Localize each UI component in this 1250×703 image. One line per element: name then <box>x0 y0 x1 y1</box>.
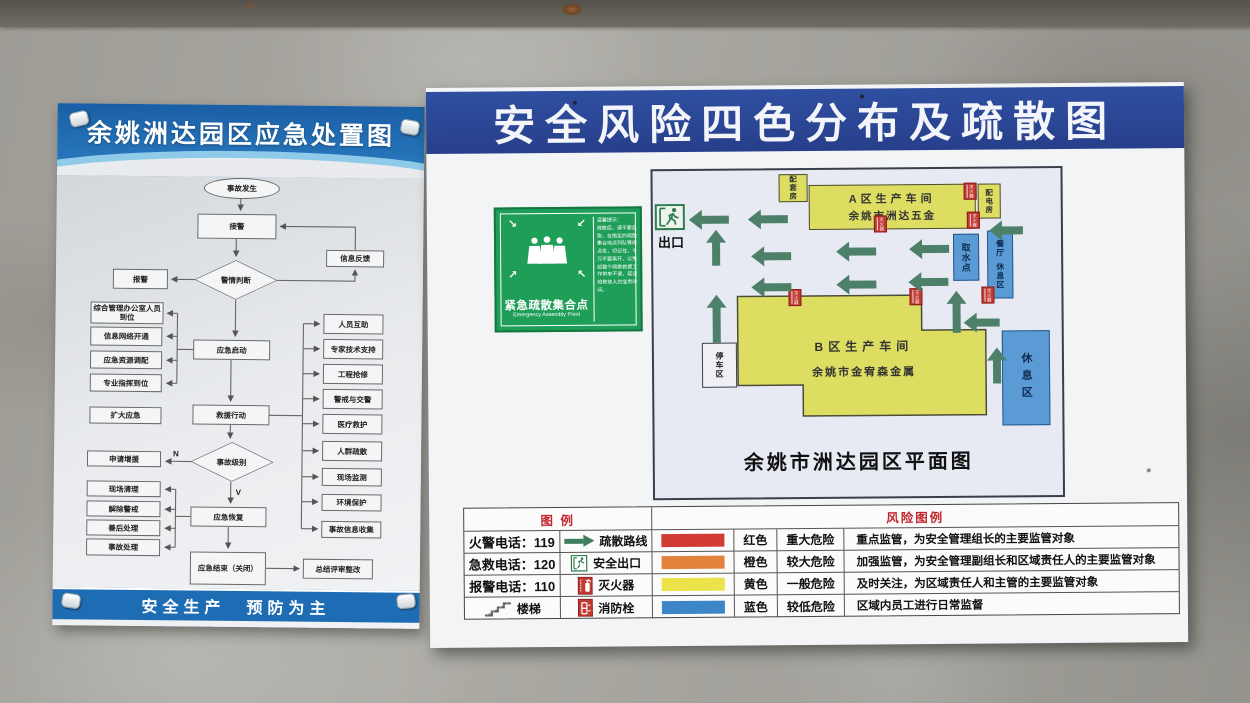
flow-node-r1: 专家技术支持 <box>323 339 383 360</box>
mount-clip-icon <box>399 118 420 136</box>
flow-node-zhihui: 专业指挥到位 <box>90 373 162 392</box>
exit-label: 出口 <box>651 232 691 251</box>
evacuation-arrow-left <box>748 209 788 229</box>
flow-node-zonghe: 综合管理办公室人员到位 <box>90 301 163 324</box>
extinguisher-marker-icon: 灭火器 <box>964 183 977 200</box>
evacuation-arrow-left <box>836 274 876 294</box>
exit-door-icon <box>655 204 685 230</box>
stairs-icon <box>484 600 512 616</box>
extinguisher-marker-icon: 灭火器 <box>874 215 887 232</box>
evacuation-arrow-up <box>706 295 726 343</box>
flow-node-kuoda: 扩大应急 <box>89 406 161 424</box>
route-arrow-icon <box>564 535 594 548</box>
building-a-workshop: A区生产车间 余姚市洲达五金 <box>809 184 976 230</box>
map-caption: 余姚市洲达园区平面图 <box>655 444 1063 476</box>
flow-node-r0: 人员互助 <box>323 314 383 335</box>
concrete-wall-scene: 余姚洲达园区应急处置图 <box>0 0 1250 703</box>
emergency-response-poster: 余姚洲达园区应急处置图 <box>52 103 424 629</box>
flow-node-huifu: 应急恢复 <box>190 507 266 528</box>
color-name-cell: 黄色 <box>735 573 778 595</box>
left-poster-footer: 安全生产 预防为主 <box>52 587 419 623</box>
evacuation-arrow-left <box>689 210 729 230</box>
red-bar <box>661 534 724 547</box>
flow-node-jibie: 事故级别 <box>194 442 269 483</box>
evacuation-arrow-up <box>987 347 1007 383</box>
rust-stain-small <box>244 2 256 10</box>
people-group-icon <box>524 236 570 264</box>
fire-hydrant-icon <box>578 599 593 617</box>
legend-header-left: 图 例 <box>464 507 652 531</box>
mount-clip-icon <box>396 593 416 610</box>
flow-node-shigu: 事故处理 <box>86 538 160 556</box>
assembly-sign-subtitle: Emergency Assembly Point <box>501 312 593 319</box>
flow-node-zongjie: 总结评审整改 <box>303 559 373 580</box>
color-bar-cell <box>652 552 734 575</box>
extinguisher-marker-icon: 灭火器 <box>967 212 980 229</box>
risk-level-cell: 重大危险 <box>777 529 844 552</box>
flow-node-jiejing: 接警 <box>197 214 276 240</box>
risk-level-cell: 一般危险 <box>778 573 845 596</box>
flow-node-jingqing: 警情判断 <box>196 260 276 301</box>
emergency-assembly-sign: ↘ ↙ ↗ ↖ 紧急疏散集合点 Emergency Assembly Point… <box>494 206 643 332</box>
evacuation-arrow-up <box>946 291 966 333</box>
extinguisher-cell: 灭火器 <box>561 574 653 597</box>
risk-desc-cell: 区域内员工进行日常监督 <box>845 592 1179 617</box>
color-bar-cell <box>652 530 734 553</box>
mount-clip-icon <box>61 592 82 610</box>
flow-node-wangluo: 信息网络开通 <box>90 326 162 346</box>
building-b-labels: B区生产车间 余姚市金宥森金属 <box>749 337 979 381</box>
legend-table: 图 例 风险图例 火警电话：119 疏散路线 红色 重大危险 重点监管，为安全管… <box>463 502 1180 620</box>
flow-node-jiechu: 解除警戒 <box>86 500 160 517</box>
risk-level-cell: 较低危险 <box>778 595 845 618</box>
color-bar-cell <box>653 596 735 619</box>
evacuation-arrow-up <box>706 230 726 266</box>
risk-desc-cell: 加强监管，为安全管理副组长和区域责任人的主要监管对象 <box>844 548 1178 573</box>
risk-level-cell: 较大危险 <box>777 551 844 574</box>
stairs-cell: 楼梯 <box>465 597 561 620</box>
evacuation-arrow-left <box>989 220 1023 240</box>
flow-node-baojing: 报警 <box>113 269 168 290</box>
fire-phone-cell: 火警电话：119 <box>464 531 560 554</box>
flow-node-r4: 医疗救护 <box>322 414 382 435</box>
color-name-cell: 蓝色 <box>735 595 778 617</box>
risk-desc-cell: 及时关注，为区域责任人和主管的主要监管对象 <box>845 570 1179 595</box>
flow-node-qidong: 应急启动 <box>193 340 270 361</box>
color-name-cell: 红色 <box>734 529 777 551</box>
police-phone-cell: 报警电话：110 <box>465 575 561 598</box>
flow-node-r8: 事故信息收集 <box>321 521 381 539</box>
evacuation-arrow-left <box>909 239 949 259</box>
risk-desc-cell: 重点监管，为安全管理组长的主要监管对象 <box>844 526 1178 551</box>
flow-node-shenqing: 申请增援 <box>87 450 161 467</box>
orange-bar <box>661 556 724 569</box>
safety-exit-cell: 安全出口 <box>560 552 652 575</box>
flow-node-r3: 警戒与交警 <box>323 389 383 410</box>
evacuation-route-cell: 疏散路线 <box>560 530 652 553</box>
flow-node-jiuyuan: 救援行动 <box>192 405 269 426</box>
screw-dot <box>860 95 864 99</box>
building-peidianfang: 配电房 <box>978 183 1001 218</box>
building-peitaofang: 配套房 <box>779 174 808 202</box>
flow-label-n: N <box>173 449 179 458</box>
fire-extinguisher-icon <box>578 576 593 594</box>
risk-distribution-poster: 安全风险四色分布及疏散图 ↘ ↙ ↗ ↖ 紧急疏散集合点 <box>426 82 1188 648</box>
hydrant-cell: 消防栓 <box>561 596 653 619</box>
exit-sign-icon <box>571 555 588 572</box>
aid-phone-cell: 急救电话：120 <box>464 553 560 576</box>
wall-top-band <box>0 0 1250 27</box>
screw-dot <box>1147 468 1151 472</box>
flow-node-shanhou: 善后处理 <box>86 519 160 536</box>
flow-node-ziyuan: 应急资源调配 <box>90 350 162 369</box>
extinguisher-marker-icon: 灭火器 <box>981 287 994 304</box>
site-map: 出口 配套房 A区生产车间 余姚市洲达五金 配电房 取水点 餐厅 休息区 休息区 <box>650 166 1065 500</box>
assembly-sign-tips: 温馨提示： 疏散后，请不要乱跑，在指定的疏散集合地点列队等候点名，切记住，千万不… <box>597 217 639 295</box>
flow-node-qingli: 现场清理 <box>87 480 161 497</box>
screw-dot <box>573 101 577 105</box>
right-poster-title: 安全风险四色分布及疏散图 <box>426 86 1184 154</box>
evacuation-arrow-left <box>964 312 1000 332</box>
area-rest-large: 休息区 <box>1002 330 1051 425</box>
flow-node-r7: 环境保护 <box>321 494 381 512</box>
flow-node-r2: 工程抢修 <box>323 364 383 385</box>
flow-label-v: V <box>236 488 241 497</box>
evacuation-arrow-left <box>751 246 791 266</box>
flow-node-r5: 人群疏散 <box>322 441 382 462</box>
yellow-bar <box>662 578 725 591</box>
area-water-point: 取水点 <box>953 234 979 281</box>
running-man-icon <box>657 206 683 228</box>
flow-node-jieshu: 应急结束（关闭） <box>190 552 266 586</box>
flow-node-r6: 现场监测 <box>322 468 382 487</box>
blue-bar <box>662 600 725 613</box>
evacuation-arrow-left <box>836 241 876 261</box>
rust-stain <box>562 4 582 15</box>
assembly-point-icon: ↘ ↙ ↗ ↖ <box>506 219 588 282</box>
evacuation-arrow-left <box>908 272 948 292</box>
area-parking: 停车区 <box>702 343 737 388</box>
color-bar-cell <box>653 574 735 597</box>
color-name-cell: 橙色 <box>734 551 777 573</box>
flow-node-xinxifankui: 信息反馈 <box>326 250 384 268</box>
evacuation-arrow-left <box>751 277 791 297</box>
